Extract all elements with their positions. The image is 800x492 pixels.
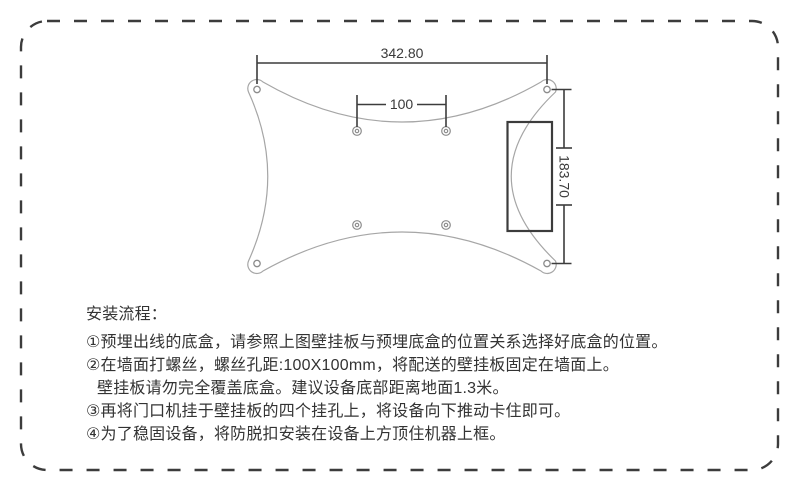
dim-height-label: 183.70 [557,155,573,198]
instruction-step-3: ③再将门口机挂于壁挂板的四个挂孔上，将设备向下推动卡住即可。 [86,400,766,423]
instruction-step-4: ④为了稳固设备，将防脱扣安装在设备上方顶住机器上框。 [86,423,766,446]
instructions-title: 安装流程： [86,304,766,326]
dim-hole-spacing-label: 100 [390,96,414,112]
manual-page: 342.80 100 183.70 安装流程： ①预埋出线的底盒，请参照上图壁挂… [0,0,800,492]
instruction-step-2: ②在墙面打螺丝，螺丝孔距:100X100mm，将配送的壁挂板固定在墙面上。 [86,354,766,377]
instruction-step-1: ①预埋出线的底盒，请参照上图壁挂板与预埋底盒的位置关系选择好底盒的位置。 [86,331,766,354]
instruction-step-2-continued: 壁挂板请勿完全覆盖底盒。建议设备底部距离地面1.3米。 [86,377,766,400]
dim-width-label: 342.80 [381,45,424,61]
installation-instructions: 安装流程： ①预埋出线的底盒，请参照上图壁挂板与预埋底盒的位置关系选择好底盒的位… [86,304,766,446]
